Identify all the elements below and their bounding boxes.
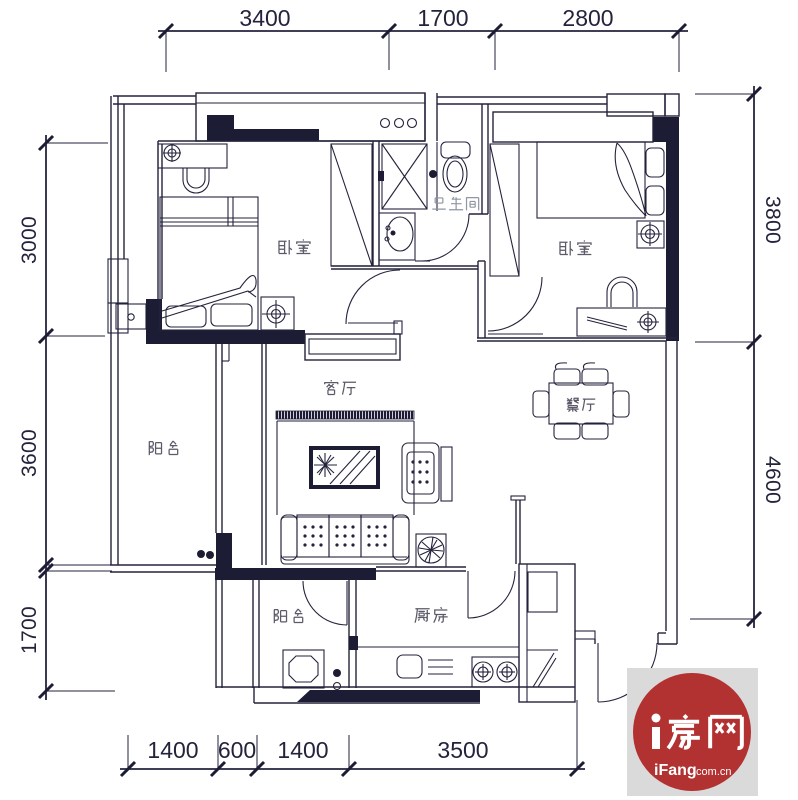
svg-text:3800: 3800 [761, 196, 784, 244]
svg-text:4600: 4600 [761, 456, 784, 504]
svg-text:.com.cn: .com.cn [693, 766, 732, 778]
svg-text:3000: 3000 [18, 216, 41, 264]
svg-text:2800: 2800 [562, 5, 613, 31]
svg-text:600: 600 [218, 737, 256, 763]
svg-text:3600: 3600 [18, 429, 41, 477]
svg-text:1400: 1400 [147, 737, 198, 763]
svg-text:1700: 1700 [18, 606, 41, 654]
svg-text:iFang: iFang [654, 762, 697, 779]
svg-text:3400: 3400 [239, 5, 290, 31]
svg-text:3500: 3500 [437, 737, 488, 763]
svg-text:1700: 1700 [417, 5, 468, 31]
svg-text:1400: 1400 [277, 737, 328, 763]
